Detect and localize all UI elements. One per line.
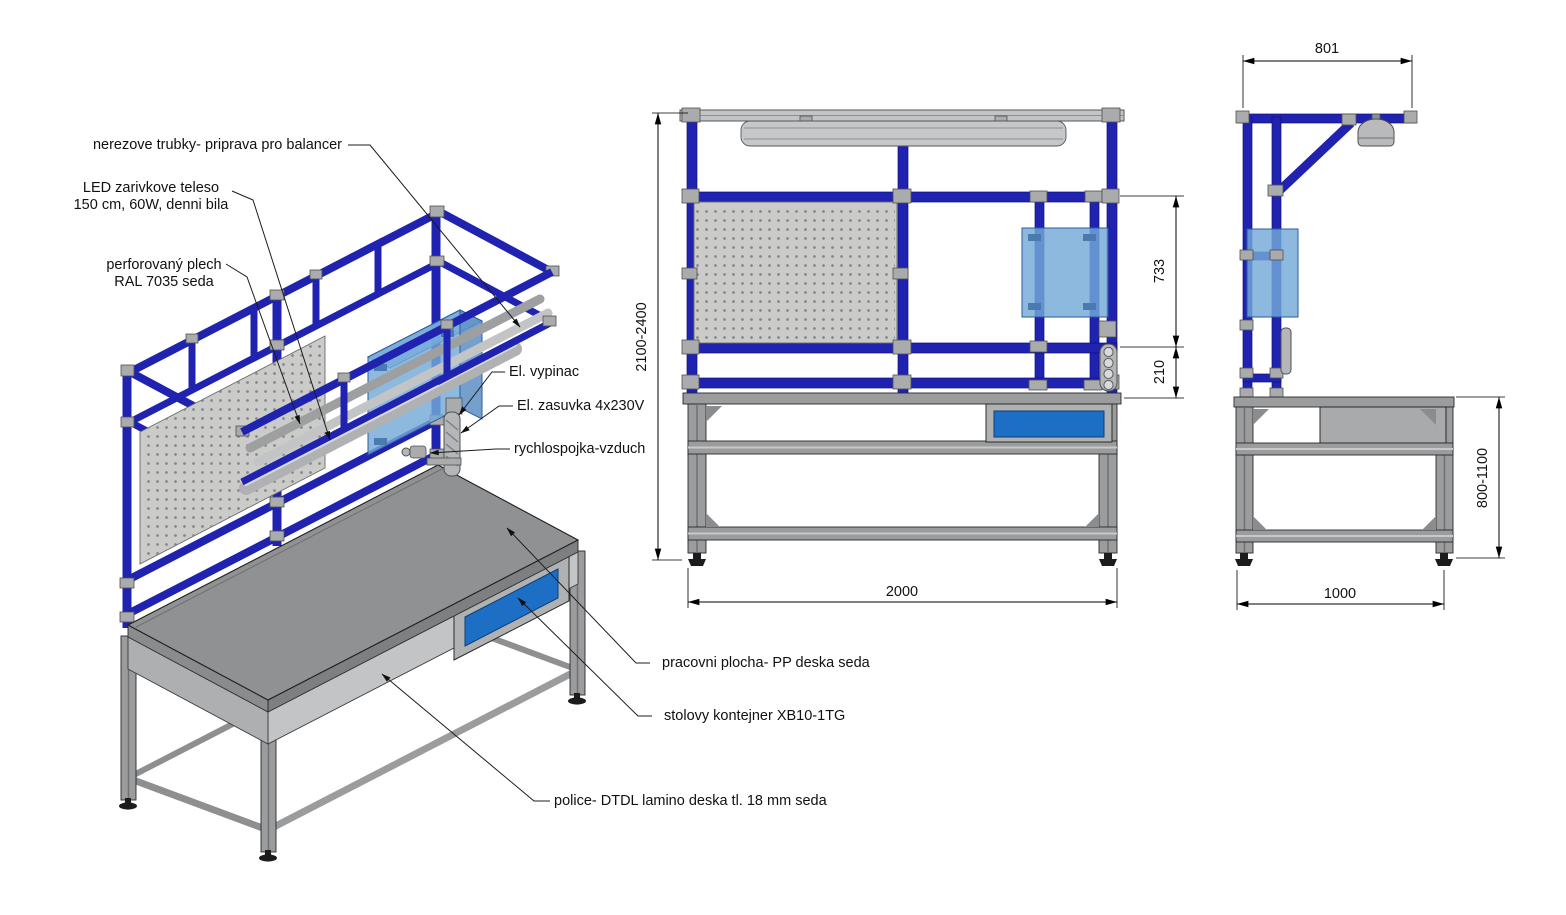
side-feet (1235, 553, 1453, 566)
front-bench (683, 393, 1121, 566)
side-blue-panel (1247, 229, 1298, 317)
front-drawer-front (994, 411, 1104, 437)
dim-bench-width: 2000 (886, 584, 918, 600)
iso-air-coupling (402, 446, 426, 458)
technical-drawing-canvas: 2100-2400 733 210 2000 801 800-1100 1000… (0, 0, 1566, 915)
dim-panel-height: 733 (1152, 259, 1168, 283)
front-pegboard (694, 202, 897, 343)
side-bench (1234, 397, 1454, 566)
front-switch (1099, 321, 1116, 337)
front-drawer-container (986, 404, 1112, 442)
side-socket-strip (1281, 328, 1291, 374)
front-worktop (683, 393, 1121, 404)
label-perforated-line2: RAL 7035 seda (114, 274, 214, 290)
isometric-view (119, 206, 586, 862)
side-view (1234, 111, 1454, 566)
iso-feet (119, 693, 586, 862)
cad-drawing-page: 2100-2400 733 210 2000 801 800-1100 1000… (0, 0, 1566, 915)
dim-gap-height: 210 (1152, 360, 1168, 384)
label-led-line1: LED zarivkove teleso (83, 180, 219, 196)
label-led-line2: 150 cm, 60W, denni bila (74, 197, 230, 213)
label-perforated-line1: perforovaný plech (106, 257, 221, 273)
label-container: stolovy kontejner XB10-1TG (664, 708, 845, 724)
side-worktop (1234, 397, 1454, 407)
label-balancer-tubes: nerezove trubky- priprava pro balancer (93, 137, 342, 153)
label-socket: El. zasuvka 4x230V (517, 398, 645, 414)
dim-frame-depth: 801 (1315, 41, 1339, 57)
front-view (680, 108, 1124, 566)
front-blue-panel (1022, 228, 1108, 317)
front-feet (688, 553, 1117, 566)
label-shelf: police- DTDL lamino deska tl. 18 mm seda (554, 793, 828, 809)
label-worktop: pracovni plocha- PP deska seda (662, 655, 871, 671)
dim-bench-depth: 1000 (1324, 586, 1356, 602)
dim-overall-height: 2100-2400 (634, 302, 650, 371)
label-switch: El. vypinac (509, 364, 579, 380)
front-socket-strip (1100, 344, 1117, 391)
dim-bench-height: 800-1100 (1475, 448, 1491, 508)
label-air-coupling: rychlospojka-vzduch (514, 441, 645, 457)
